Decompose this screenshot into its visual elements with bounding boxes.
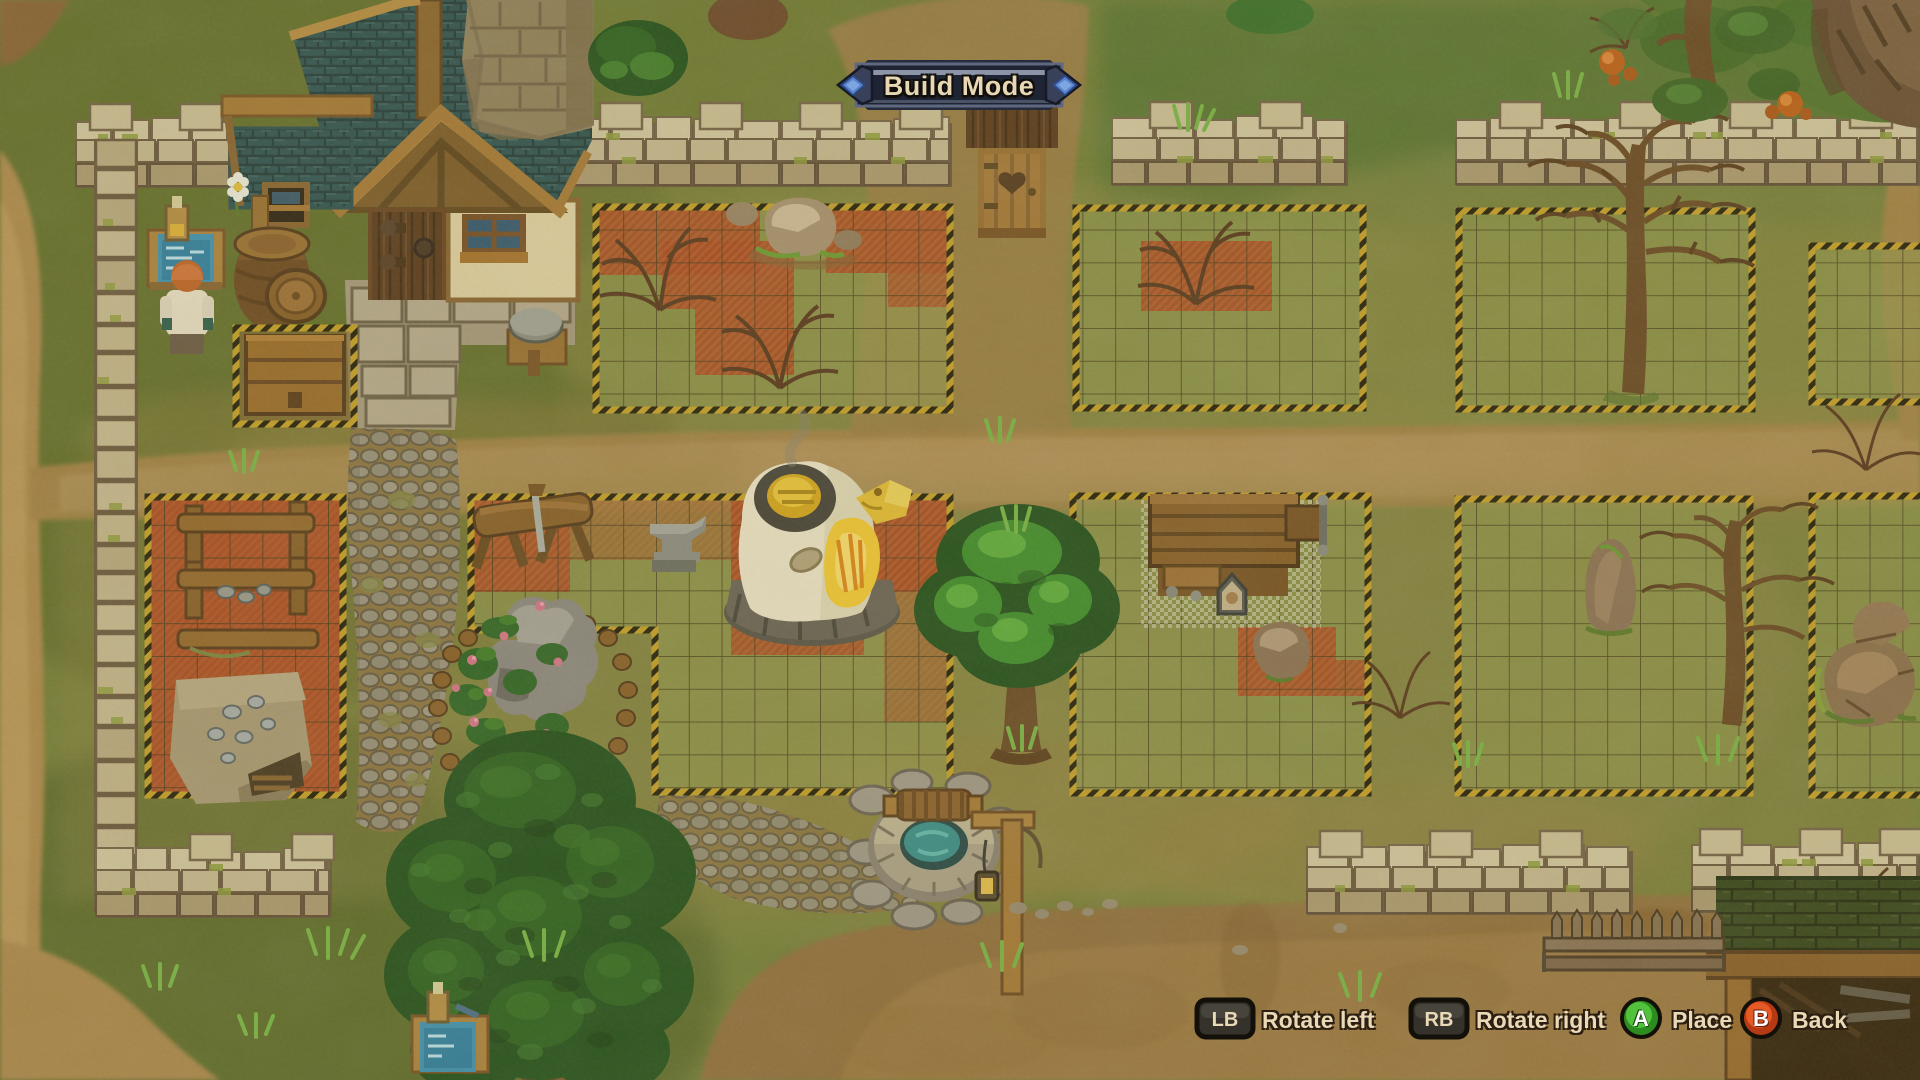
svg-text:LB: LB (1212, 1009, 1239, 1031)
svg-text:Place: Place (1672, 1007, 1732, 1033)
svg-text:RB: RB (1425, 1009, 1454, 1031)
svg-text:Build Mode: Build Mode (884, 71, 1034, 101)
svg-text:A: A (1633, 1006, 1649, 1031)
svg-text:Rotate right: Rotate right (1476, 1007, 1605, 1033)
svg-text:Back: Back (1792, 1007, 1847, 1033)
svg-text:Rotate left: Rotate left (1262, 1007, 1375, 1033)
svg-text:B: B (1753, 1006, 1769, 1031)
